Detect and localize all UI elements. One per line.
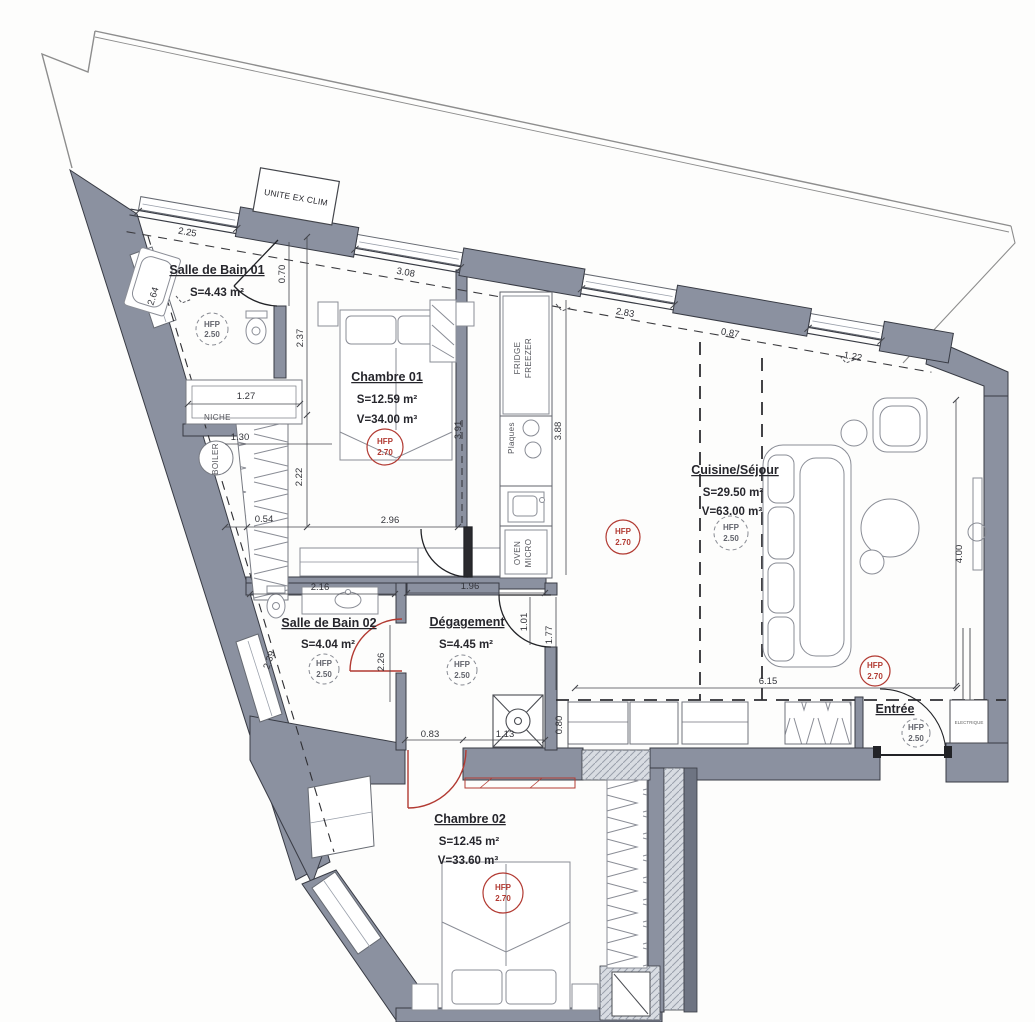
floorplan-drawing: UNITE EX CLIM 2.25 3.08 2.83 0.87 1.22 (0, 0, 1035, 1022)
ch2-shaft (612, 972, 650, 1016)
ch2-bedside-left (412, 984, 438, 1010)
dim-cuisine-w: 6.15 (759, 676, 778, 687)
ch1-bedside-left (318, 302, 338, 326)
room-ch2-area: S=12.45 m² (439, 836, 500, 848)
dim-right-wall: 4.00 (954, 545, 965, 564)
dim-top-right: 1.22 (843, 350, 863, 364)
right-wall (984, 396, 1008, 750)
room-ch1-area: S=12.59 m² (357, 394, 418, 406)
room-ch2-volume: V=33.60 m³ (438, 855, 499, 867)
hfp-cuisine-right-value: 2.70 (867, 672, 883, 681)
dim-ch1-h: 2.22 (294, 468, 305, 487)
room-sdb2-area: S=4.04 m² (301, 639, 355, 651)
dim-cuisine-h: 1.77 (544, 626, 555, 645)
room-ch1-name: Chambre 01 (351, 370, 423, 384)
deg-top-jamb (545, 583, 557, 595)
floorplan-page: UNITE EX CLIM 2.25 3.08 2.83 0.87 1.22 (0, 0, 1035, 1022)
niche-label: NICHE (204, 413, 231, 422)
hfp-cuisine: HFP 2.50 (714, 516, 748, 550)
hfp-cuisine-value: 2.50 (723, 534, 739, 543)
toilet-sdb1 (246, 311, 267, 344)
hfp-cuisine-label: HFP (723, 523, 740, 532)
entree-jamb (855, 697, 863, 748)
freezer-label: FREEZER (524, 338, 533, 378)
hfp-ch2-value: 2.70 (495, 894, 511, 903)
hfp-cuisine-right-label: HFP (867, 661, 884, 670)
bottom-wall-seg1 (463, 748, 583, 780)
dim-sdb2-w: 2.16 (311, 582, 330, 593)
dim-top-block: 0.87 (720, 326, 740, 340)
hfp-ch1-label: HFP (377, 437, 394, 446)
room-sdb1-area: S=4.43 m² (190, 287, 244, 299)
round-table (861, 499, 919, 557)
ch2-outer-dark-band (684, 768, 697, 1012)
sdb1-wall-lower (274, 306, 286, 378)
plaques-label: Plaques (507, 422, 516, 454)
hfp-deg-value: 2.50 (454, 671, 470, 680)
sejour-low-units (568, 702, 851, 744)
dim-deg-door: 1.01 (519, 613, 530, 632)
side-table-small (841, 420, 867, 446)
electrique-label: ELECTRIQUE (955, 720, 984, 725)
dim-sdb2-door: 2.26 (376, 653, 387, 672)
dim-niche: 1.27 (237, 391, 256, 402)
hfp-kitchen-label: HFP (615, 527, 632, 536)
sdb2-deg-wall-top (396, 583, 406, 623)
dim-top-ch1: 3.08 (396, 266, 416, 280)
room-cuisine-area: S=29.50 m² (703, 487, 764, 499)
dim-closet: 0.54 (255, 514, 274, 525)
stool (860, 550, 884, 574)
hfp-entree-value: 2.50 (908, 734, 924, 743)
dim-top-sdb1: 2.25 (177, 226, 197, 240)
dim-deg-w: 1.96 (461, 581, 480, 592)
hfp-entree: HFP 2.50 (902, 719, 930, 747)
door-ch2-red (408, 750, 466, 808)
bottom-wall-seg3 (946, 743, 1008, 782)
hfp-cuisine-right: HFP 2.70 (860, 656, 890, 686)
dim-ch1-w: 2.96 (381, 515, 400, 526)
room-ch2-name: Chambre 02 (434, 812, 506, 826)
hfp-sdb2-value: 2.50 (316, 670, 332, 679)
sejour-furniture (763, 398, 986, 667)
room-entree-name: Entrée (876, 702, 915, 716)
room-deg-name: Dégagement (429, 615, 505, 629)
ch2-wardrobe (607, 780, 647, 968)
room-deg-area: S=4.45 m² (439, 639, 493, 651)
micro-label: MICRO (524, 539, 533, 568)
dim-door-sdb1: 0.70 (277, 265, 288, 284)
dim-bottom-h: 0.80 (554, 716, 565, 735)
ch2-bedside-right (572, 984, 598, 1010)
sdb2-deg-wall-bottom (396, 673, 406, 750)
window-corner (308, 776, 374, 858)
ch1-closet (430, 300, 456, 362)
hfp-sdb2: HFP 2.50 (309, 654, 339, 684)
dim-kitchen-r: 3.88 (553, 422, 564, 441)
hfp-sdb1-value: 2.50 (204, 330, 220, 339)
hfp-kitchen-value: 2.70 (615, 538, 631, 547)
dim-boiler: 1.30 (231, 432, 250, 443)
hfp-sdb1: HFP 2.50 (196, 313, 228, 345)
hfp-entree-label: HFP (908, 723, 925, 732)
room-cuisine-name: Cuisine/Séjour (691, 463, 779, 477)
radiator-strip (785, 702, 851, 744)
hfp-sdb1-label: HFP (204, 320, 221, 329)
hfp-sdb2-label: HFP (316, 659, 333, 668)
dim-deg-b1: 0.83 (421, 729, 440, 740)
dim-wall-sdb1: 2.37 (295, 329, 306, 348)
armchair (873, 398, 927, 452)
oven-label: OVEN (513, 541, 522, 565)
hfp-deg: HFP 2.50 (447, 655, 477, 685)
hfp-deg-label: HFP (454, 660, 471, 669)
hfp-kitchen: HFP 2.70 (606, 520, 640, 554)
room-sdb1-name: Salle de Bain 01 (169, 263, 264, 277)
hfp-ch2-label: HFP (495, 883, 512, 892)
fridge-label: FRIDGE (513, 342, 522, 375)
dim-deg-b2: 1.13 (496, 729, 515, 740)
ch1-bedside-right (454, 302, 474, 326)
room-ch1-volume: V=34.00 m³ (357, 414, 418, 426)
dim-kitchen-l: 3.91 (453, 421, 464, 440)
hfp-ch1-value: 2.70 (377, 448, 393, 457)
boiler-label: BOILER (211, 443, 220, 475)
room-sdb2-name: Salle de Bain 02 (281, 616, 376, 630)
